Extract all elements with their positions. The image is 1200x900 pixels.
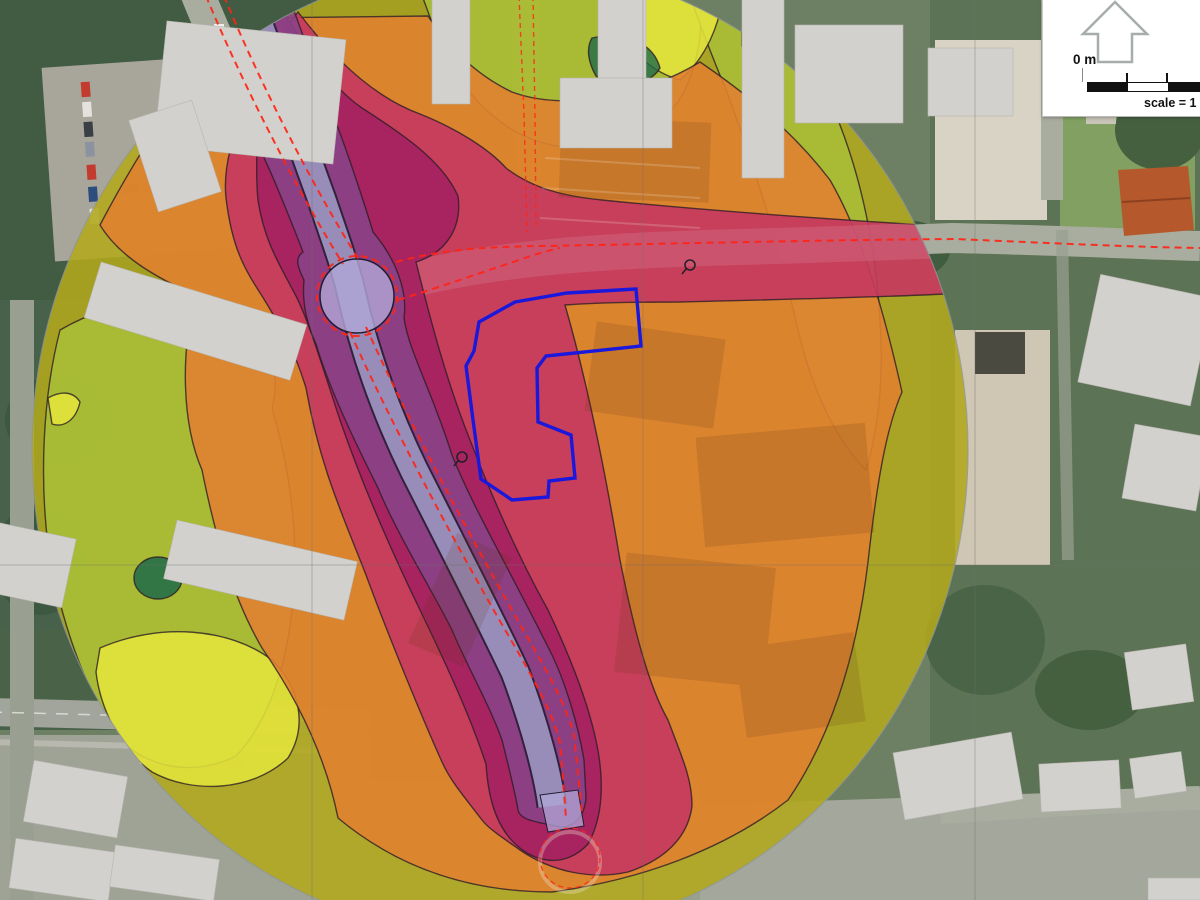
dirt-patch	[696, 423, 875, 547]
car	[85, 141, 95, 157]
scale-bar-segment-white	[1128, 83, 1168, 91]
building	[928, 48, 1013, 116]
road-band-tip	[540, 790, 584, 832]
building	[795, 25, 903, 123]
building	[1039, 760, 1121, 812]
scale-ratio-label: scale = 1 :	[1144, 96, 1200, 110]
car	[88, 186, 98, 202]
car	[86, 164, 96, 180]
pit-right	[975, 332, 1025, 374]
building	[1124, 644, 1193, 710]
building	[1122, 424, 1200, 511]
lane-right	[1062, 230, 1068, 560]
building	[560, 78, 672, 148]
building	[432, 0, 470, 104]
dirt-patch	[734, 632, 865, 738]
road-band-roundabout	[320, 259, 394, 333]
scale-panel: 0 m scale = 1 :	[1042, 0, 1200, 117]
scale-bar	[1087, 82, 1200, 92]
building	[742, 0, 784, 178]
car	[82, 102, 92, 118]
building	[1148, 878, 1200, 900]
car	[81, 82, 91, 98]
scale-zero-tick	[1082, 68, 1083, 82]
scale-zero-label: 0 m	[1073, 52, 1096, 67]
car	[83, 122, 93, 138]
noise-map-page: 0 m scale = 1 :	[0, 0, 1200, 900]
scale-bar-tick	[1166, 73, 1168, 82]
scale-bar-segment-black	[1168, 83, 1200, 91]
scale-bar-segment-black	[1088, 83, 1128, 91]
scale-bar-tick	[1126, 73, 1128, 82]
map-canvas	[0, 0, 1200, 900]
building	[1129, 752, 1186, 799]
dirt-patch	[584, 321, 725, 428]
north-arrow-icon	[1043, 0, 1153, 66]
building	[598, 0, 646, 78]
